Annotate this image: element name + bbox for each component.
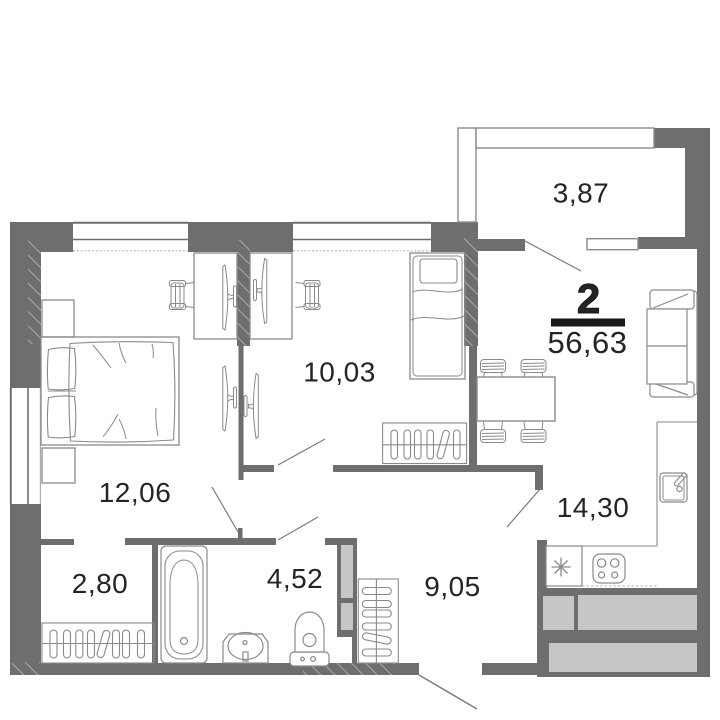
svg-text:14,30: 14,30 (557, 492, 630, 523)
svg-text:2: 2 (577, 275, 600, 322)
svg-text:12,06: 12,06 (99, 477, 172, 508)
svg-text:10,03: 10,03 (303, 357, 376, 388)
svg-text:56,63: 56,63 (547, 325, 627, 360)
svg-text:9,05: 9,05 (424, 571, 481, 602)
svg-text:2,80: 2,80 (72, 568, 129, 599)
svg-text:3,87: 3,87 (553, 178, 610, 209)
svg-text:4,52: 4,52 (267, 563, 324, 594)
